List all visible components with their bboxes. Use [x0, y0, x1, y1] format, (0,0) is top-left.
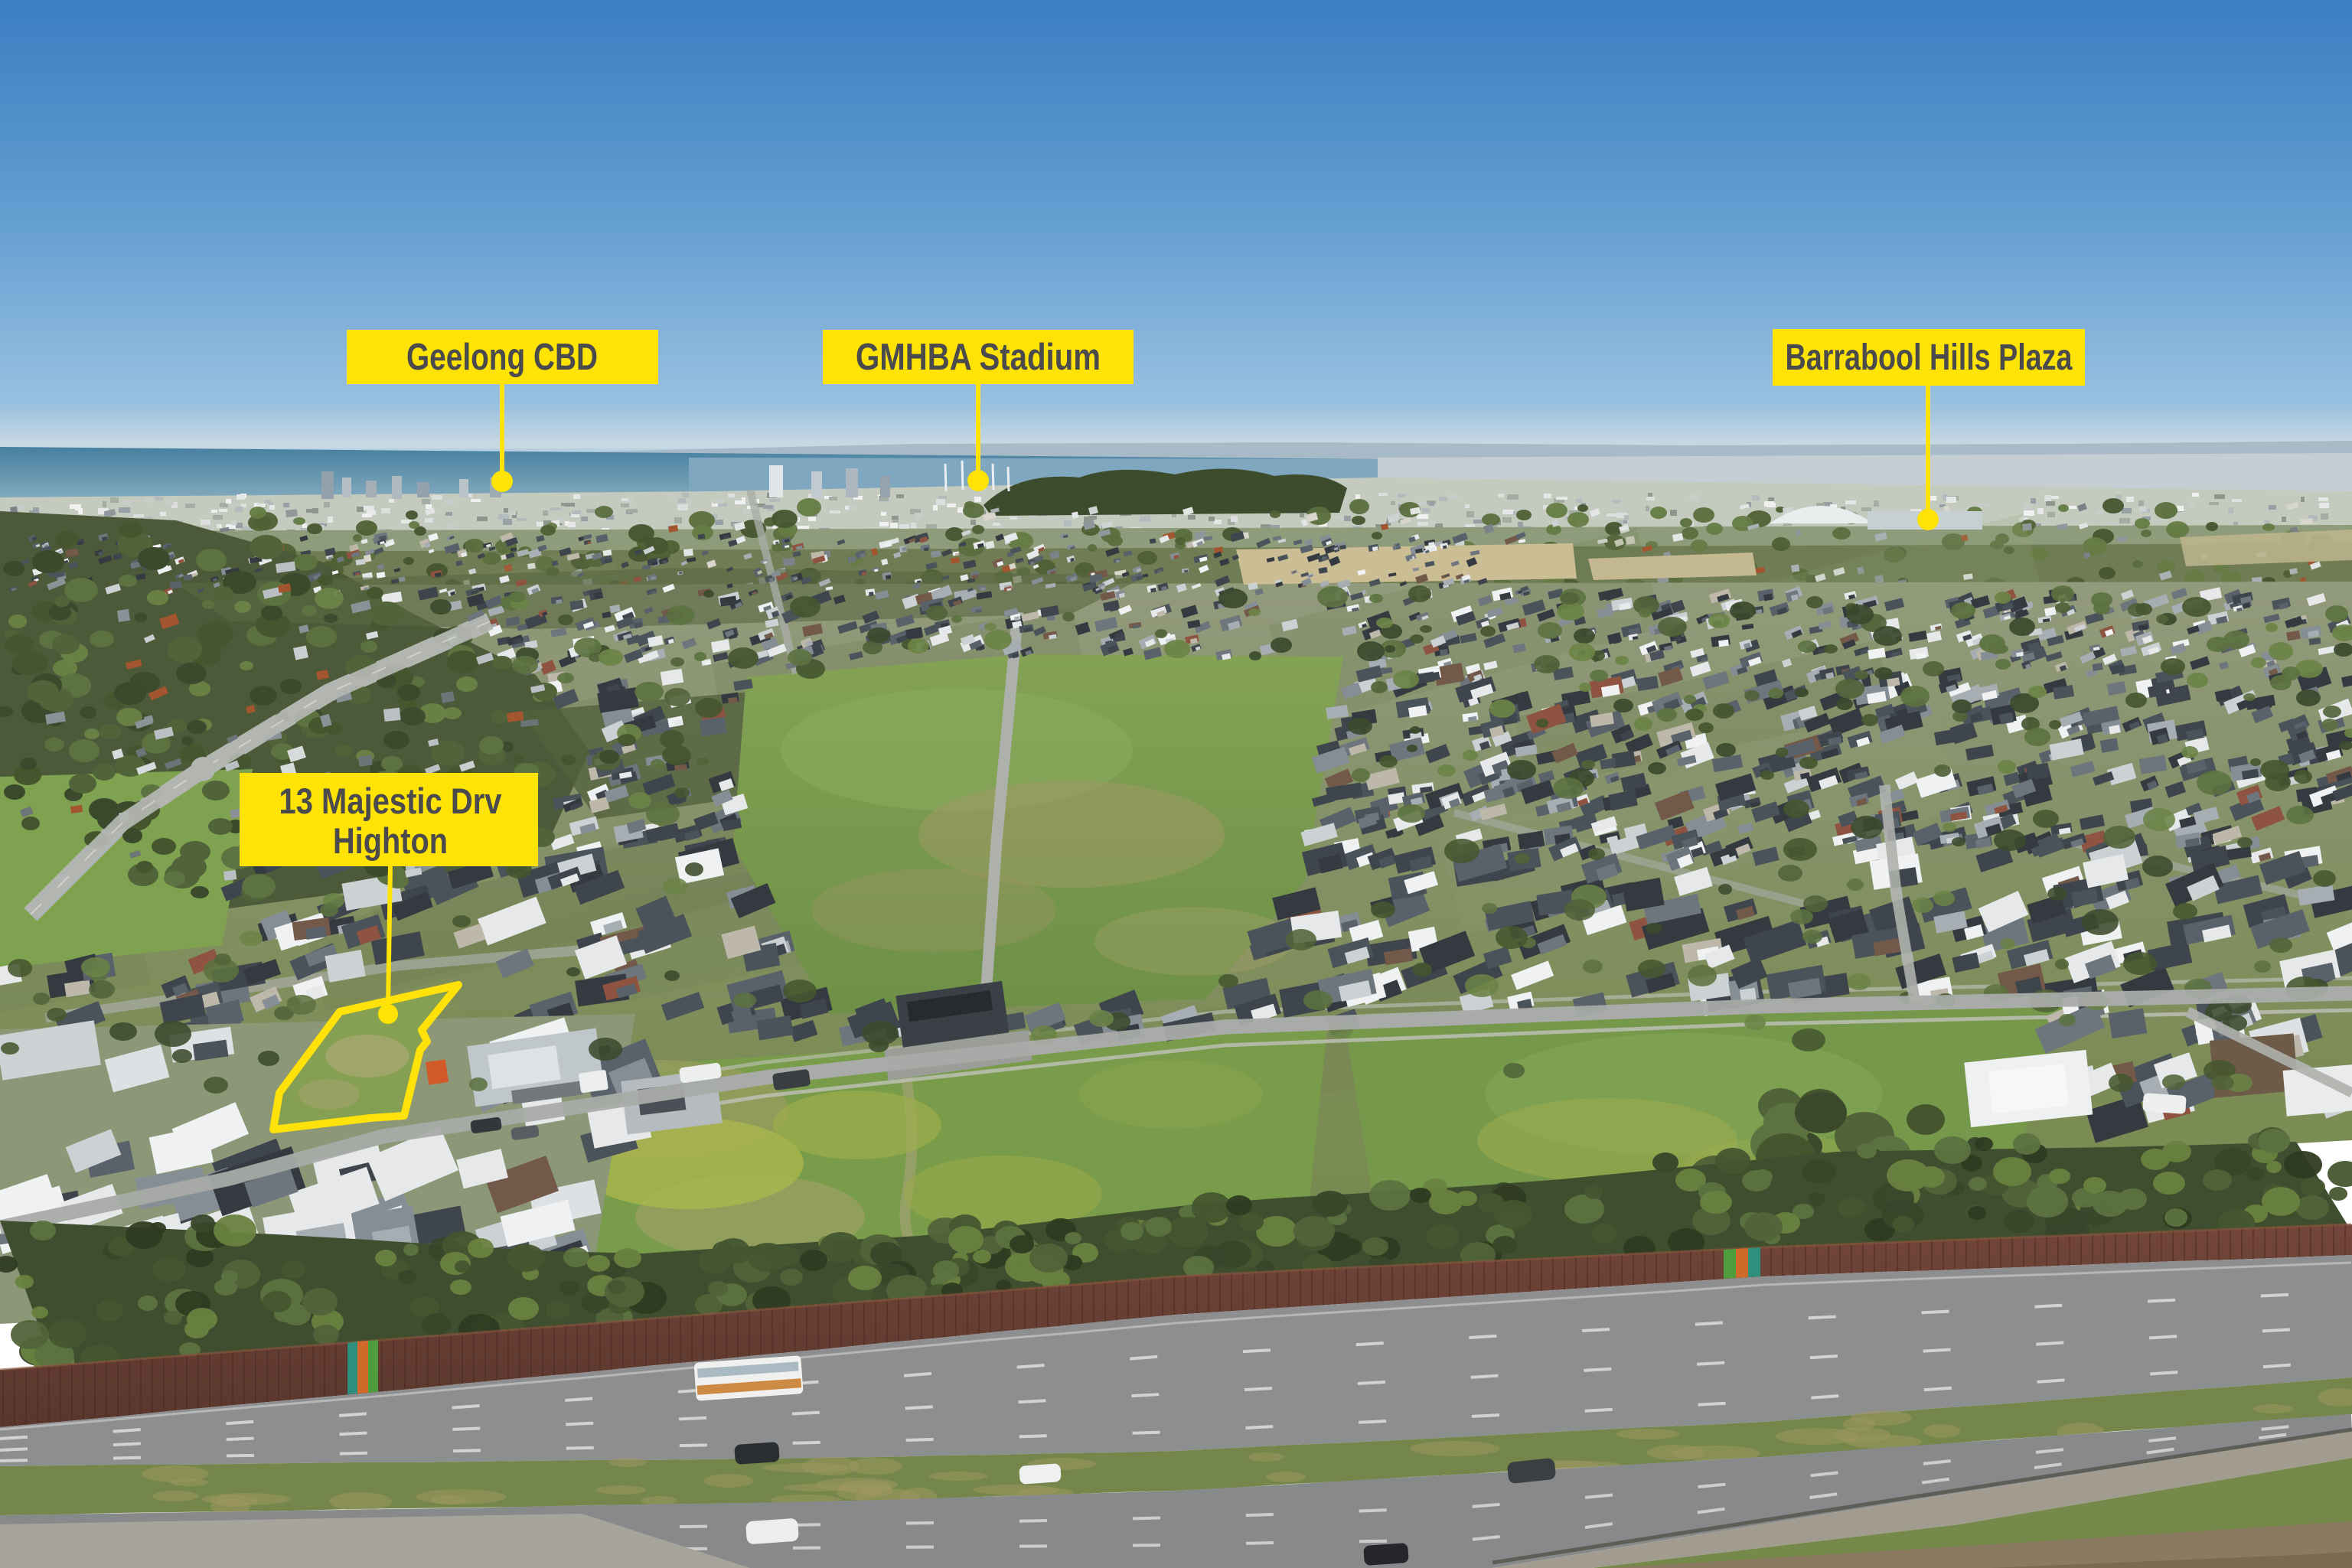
svg-text:Highton: Highton — [333, 820, 448, 861]
svg-text:Geelong CBD: Geelong CBD — [406, 337, 598, 378]
svg-text:GMHBA Stadium: GMHBA Stadium — [856, 337, 1101, 378]
svg-text:Barrabool Hills Plaza: Barrabool Hills Plaza — [1786, 337, 2073, 378]
svg-text:13 Majestic Drv: 13 Majestic Drv — [279, 781, 502, 821]
